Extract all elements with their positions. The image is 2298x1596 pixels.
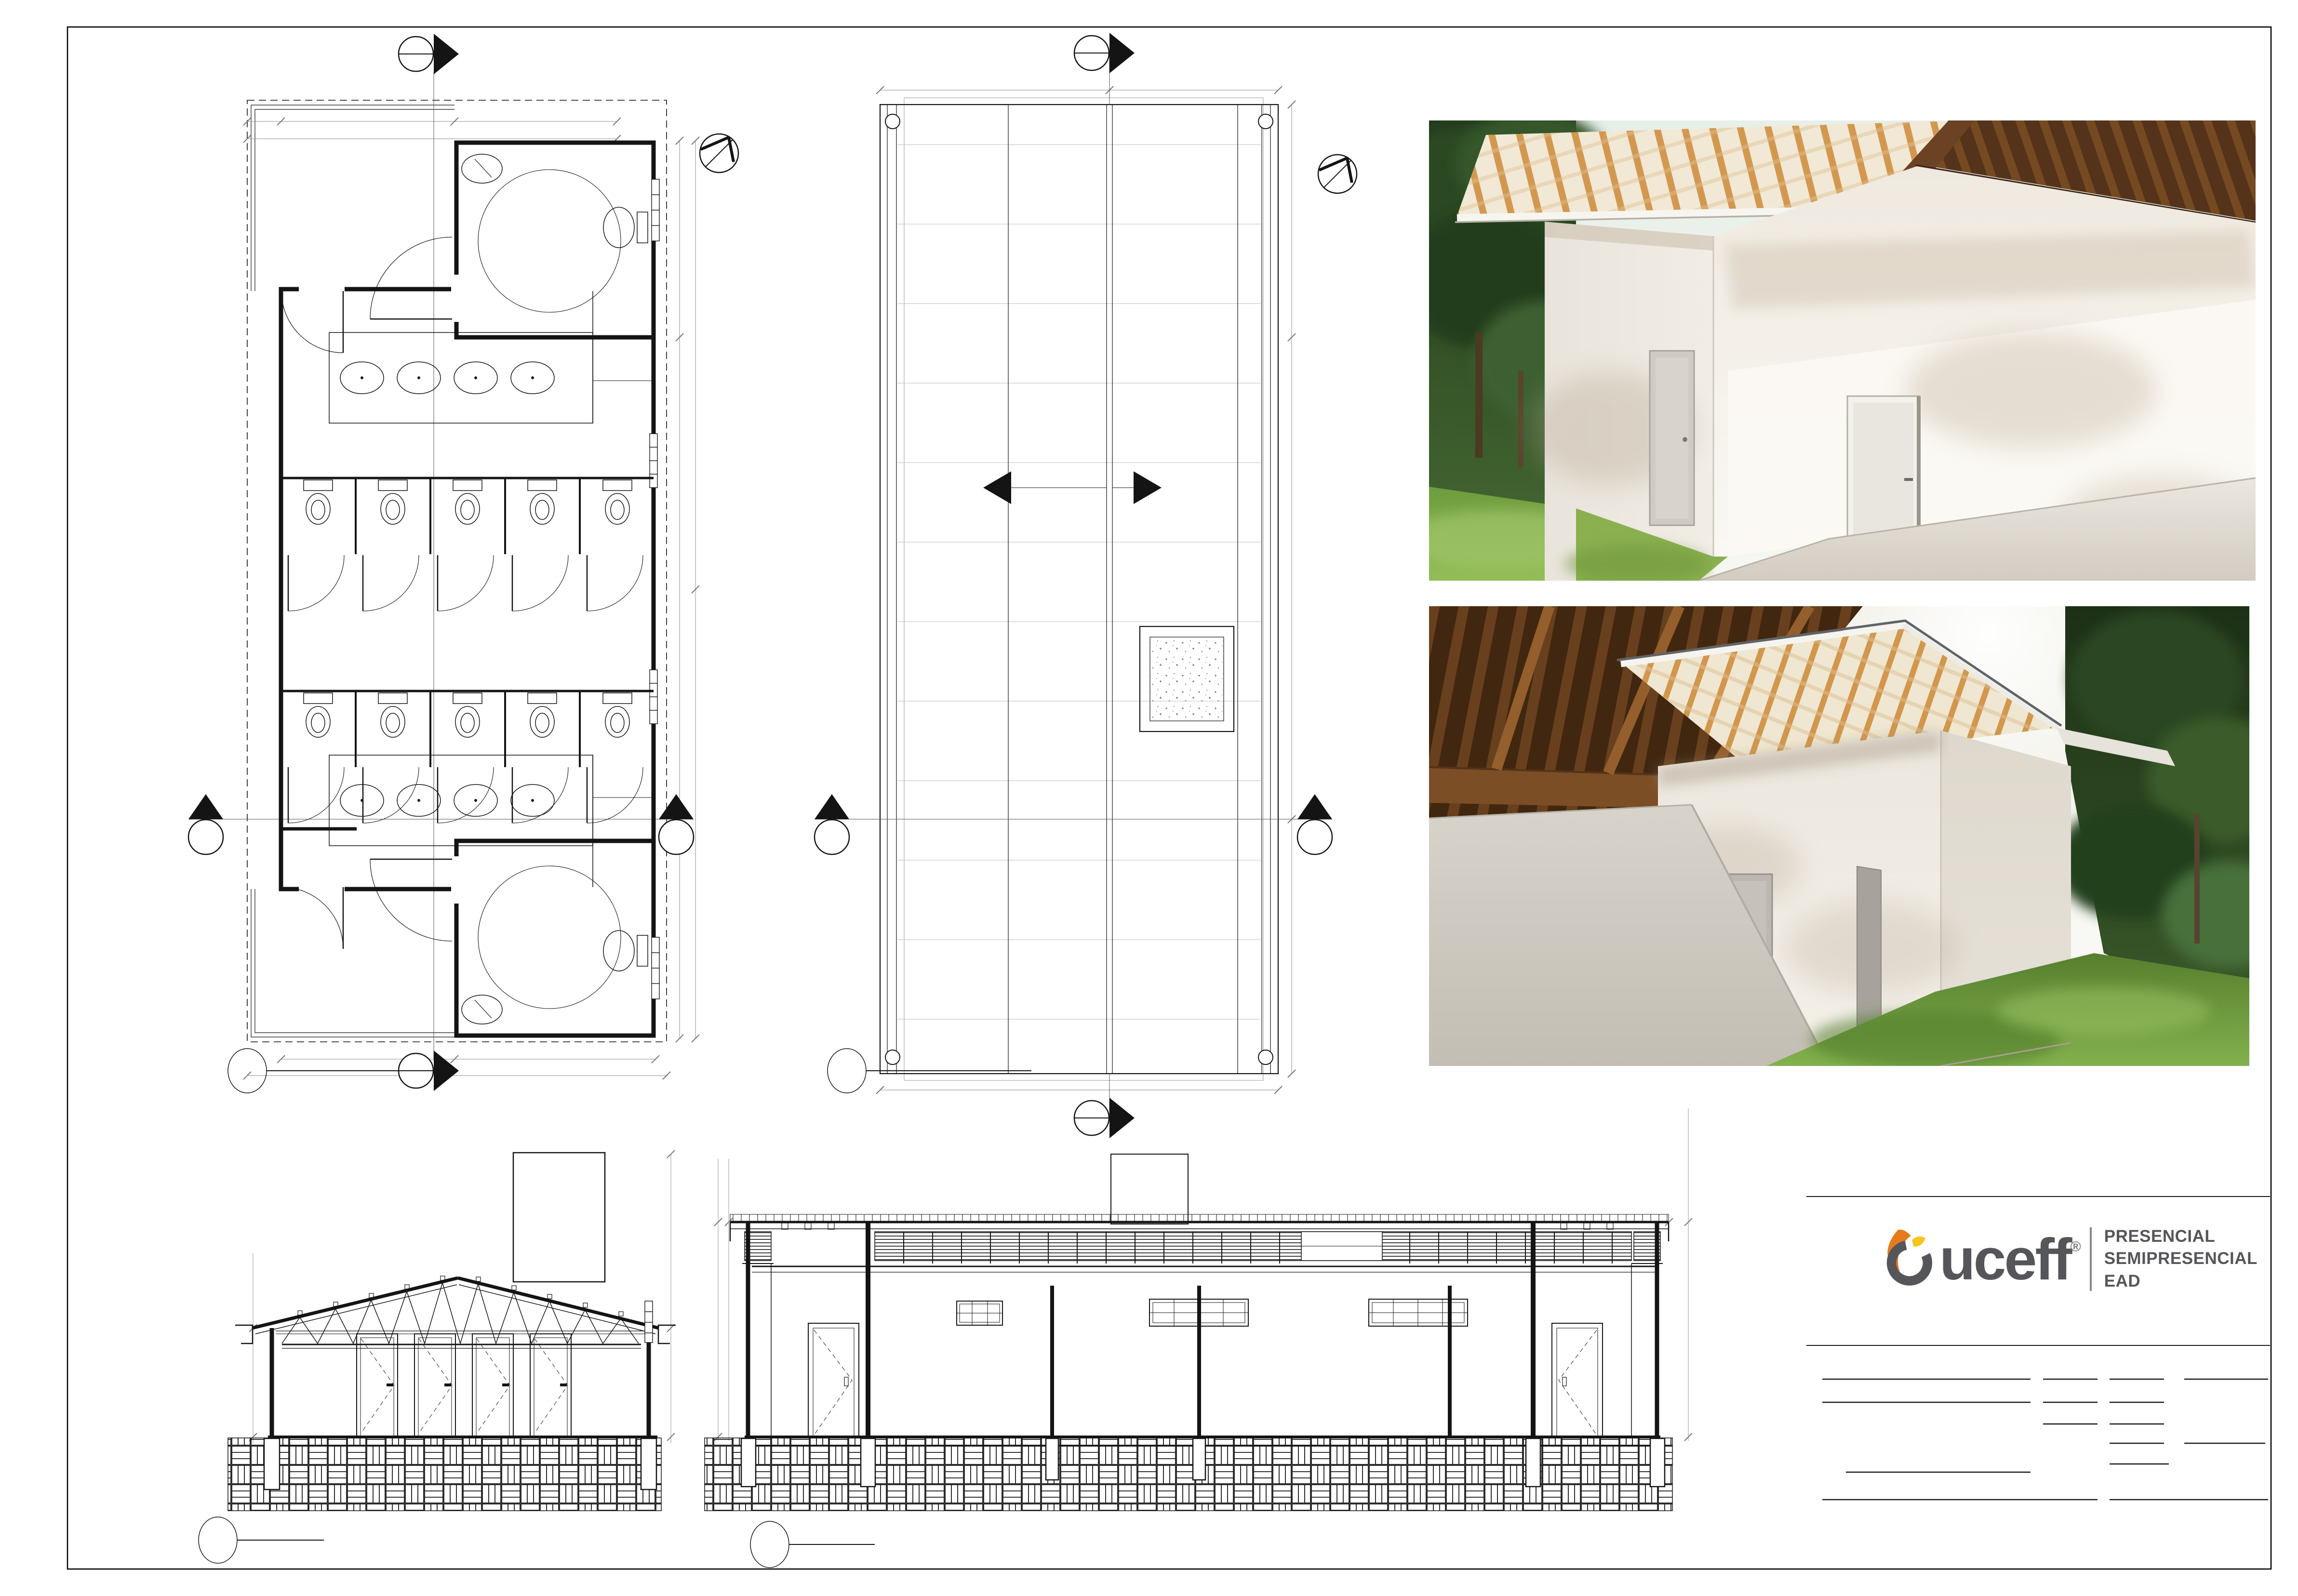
window-3 <box>1369 1299 1468 1326</box>
dimension-ticks <box>876 86 1296 1094</box>
slope-arrows <box>983 471 1162 504</box>
detail-callout <box>750 1521 875 1568</box>
toilet-symbol <box>603 931 634 971</box>
rafter-tails <box>782 1223 1613 1229</box>
tree-trunk <box>2194 813 2200 944</box>
door-small <box>1650 351 1694 525</box>
render-exterior-top <box>1429 120 2256 581</box>
tagline-line-1: PRESENCIAL <box>2104 1225 2258 1248</box>
detail-callout <box>828 1049 1031 1093</box>
window-2 <box>1149 1299 1248 1326</box>
detail-callout <box>199 1517 324 1563</box>
drawing-sheet: uceff® PRESENCIAL SEMIPRESENCIAL EAD <box>0 0 2298 1596</box>
sink-counter-top <box>329 291 652 423</box>
gutter-right <box>658 1325 676 1343</box>
dimension-lines <box>880 90 1292 1090</box>
floor-plan <box>188 34 738 1093</box>
stall-row-2 <box>281 691 654 823</box>
stall-doors <box>288 555 643 611</box>
roof-edge <box>880 105 1278 1074</box>
sink-symbol <box>462 995 502 1024</box>
uceff-flame-icon <box>1883 1221 1937 1297</box>
cross-section <box>199 1150 676 1563</box>
louver-band <box>742 1232 1663 1263</box>
door-right-face <box>1857 866 1881 1036</box>
section-markers <box>188 34 694 1091</box>
high-windows <box>957 1299 1468 1326</box>
toilet-tank-symbol <box>637 935 648 966</box>
accessible-wc-top <box>370 154 659 319</box>
slope-arrow-right <box>1134 471 1162 504</box>
tree-trunk <box>1518 371 1523 467</box>
ridge-line <box>1107 105 1112 1074</box>
level-lines <box>253 1154 671 1443</box>
corner-vents <box>885 114 1273 1064</box>
toilet-symbols <box>304 693 632 737</box>
grass-highlight <box>1998 987 2210 1035</box>
door-handle <box>1904 478 1913 481</box>
porch-slab-top <box>251 105 454 291</box>
slope-arrow-left <box>983 471 1011 504</box>
detail-callout <box>228 1049 421 1093</box>
toilet-symbol <box>603 207 634 248</box>
turning-circle <box>478 170 621 312</box>
tagline-line-2: SEMIPRESENCIAL <box>2104 1248 2258 1270</box>
uceff-logo: uceff® PRESENCIAL SEMIPRESENCIAL EAD <box>1883 1221 2258 1297</box>
door-handle <box>1683 437 1687 442</box>
tile-grid-horizontal <box>897 145 1261 1019</box>
title-block: uceff® PRESENCIAL SEMIPRESENCIAL EAD <box>1880 1207 2260 1311</box>
form-field-lines <box>1822 1379 2268 1500</box>
level-lines <box>718 1108 1688 1441</box>
skylight <box>1140 626 1234 731</box>
wall-vent-detail <box>645 1301 653 1343</box>
window-1 <box>957 1301 1002 1325</box>
toilet-tank-symbol <box>637 212 648 243</box>
section-axes <box>815 54 1332 1117</box>
render-exterior-bottom <box>1429 606 2249 1066</box>
foundation-hatch <box>228 1438 661 1511</box>
grab-bar-symbol <box>652 937 659 999</box>
section-markers <box>815 33 1332 1138</box>
grab-bar-symbol <box>652 179 659 241</box>
water-tank-outline <box>1111 1154 1188 1224</box>
fascia-lines <box>887 105 1270 1074</box>
water-tank <box>513 1153 605 1282</box>
longitudinal-section <box>705 1108 1692 1568</box>
accessible-wc-bottom <box>370 859 659 1024</box>
building-outline-below <box>904 98 1263 1080</box>
toilet-symbols <box>304 480 632 524</box>
roof-plan <box>815 33 1357 1138</box>
end-door-left <box>808 1323 859 1437</box>
north-arrow <box>700 134 738 173</box>
gutter-left <box>235 1325 253 1343</box>
brand-wordmark: uceff® <box>1939 1230 2081 1289</box>
level-ticks <box>249 1150 675 1441</box>
entry-door-bottom <box>281 887 343 949</box>
tagline-line-3: EAD <box>2104 1270 2258 1292</box>
registered-mark: ® <box>2071 1239 2081 1255</box>
logo-tagline: PRESENCIAL SEMIPRESENCIAL EAD <box>2104 1225 2258 1292</box>
tree-trunk <box>1475 332 1483 458</box>
dimension-lines <box>247 121 695 1076</box>
stall-row-1 <box>281 478 654 611</box>
walls <box>279 143 654 1036</box>
logo-divider <box>2090 1227 2092 1291</box>
entry-door-top <box>281 291 343 353</box>
turning-circle <box>478 866 621 1009</box>
interior-doors <box>357 1334 571 1437</box>
porch-slab-bottom <box>251 889 454 1037</box>
tree-shadow-dapple <box>1906 332 2157 448</box>
dimension-ticks <box>243 118 699 1079</box>
north-arrow <box>1318 155 1357 193</box>
sink-symbol <box>462 154 502 183</box>
end-door-right <box>1552 1323 1603 1437</box>
